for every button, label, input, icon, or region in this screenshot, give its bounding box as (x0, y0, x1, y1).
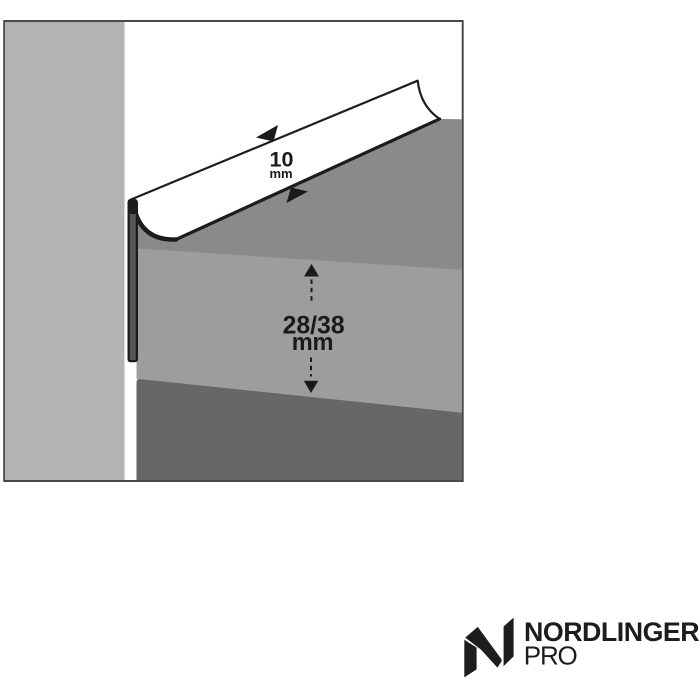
svg-text:mm: mm (269, 166, 292, 181)
svg-text:PRO: PRO (524, 640, 577, 670)
svg-text:mm: mm (292, 330, 334, 356)
